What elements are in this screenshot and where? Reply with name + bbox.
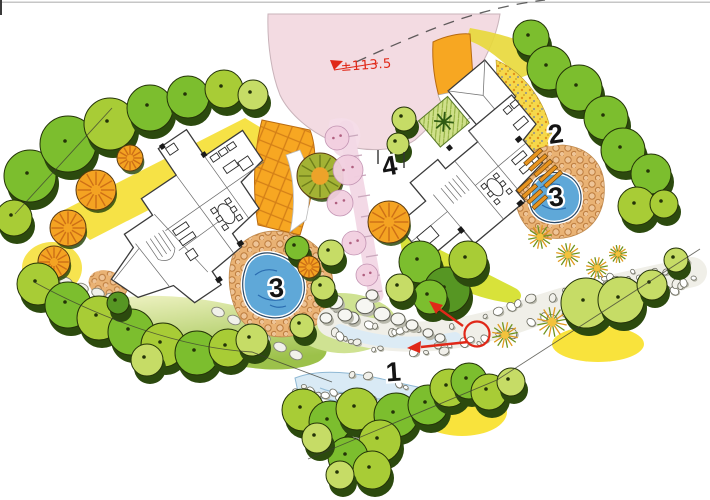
tree [327, 190, 353, 216]
marker-pond-right: 3 [547, 181, 565, 212]
marker-pond-left: 3 [268, 273, 285, 304]
tree [325, 126, 349, 150]
tree [342, 231, 366, 255]
tree [356, 264, 378, 286]
tree [333, 155, 363, 185]
marker-stream: 1 [385, 357, 402, 388]
site-plan-canvas: ±113.5 1 2 3 3 4 [0, 0, 710, 500]
scanned-site-plan: ±113.5 1 2 3 3 4 [0, 0, 710, 500]
